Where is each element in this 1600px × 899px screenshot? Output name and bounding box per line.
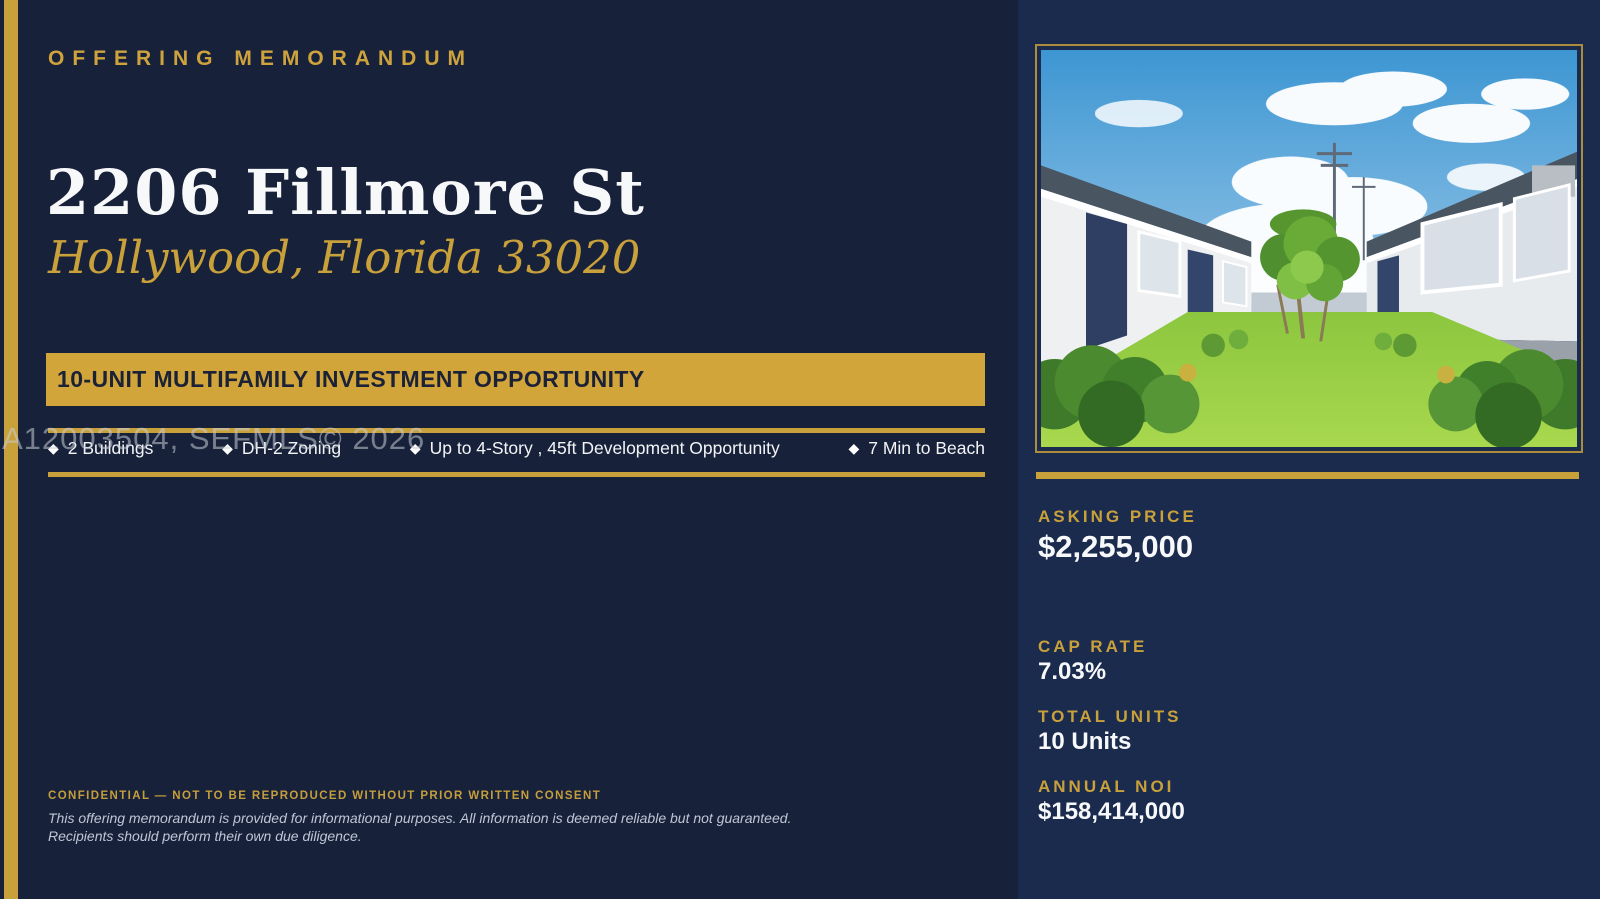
investment-banner: 10-UNIT MULTIFAMILY INVESTMENT OPPORTUNI… bbox=[46, 353, 985, 406]
highlight-item: ◆ 2 Buildings bbox=[48, 438, 153, 459]
highlight-label: 7 Min to Beach bbox=[868, 438, 985, 459]
highlight-label: DH-2 Zoning bbox=[242, 438, 341, 459]
cap-rate-value: 7.03% bbox=[1038, 658, 1106, 686]
highlight-label: Up to 4-Story , 45ft Development Opportu… bbox=[430, 438, 780, 459]
total-units-value: 10 Units bbox=[1038, 728, 1131, 756]
property-photo-frame bbox=[1035, 44, 1583, 453]
disclaimer-text: This offering memorandum is provided for… bbox=[48, 809, 791, 845]
offering-memorandum-page: OFFERING MEMORANDUM 2206 Fillmore St Hol… bbox=[0, 0, 1600, 899]
confidential-notice: CONFIDENTIAL — NOT TO BE REPRODUCED WITH… bbox=[48, 790, 601, 802]
highlights-row: ◆ 2 Buildings ◆ DH-2 Zoning ◆ Up to 4-St… bbox=[48, 434, 985, 462]
cap-rate-label: CAP RATE bbox=[1038, 637, 1147, 657]
annual-noi-label: ANNUAL NOI bbox=[1038, 777, 1174, 797]
total-units-label: TOTAL UNITS bbox=[1038, 707, 1182, 727]
diamond-icon: ◆ bbox=[410, 441, 421, 455]
highlight-item: ◆ Up to 4-Story , 45ft Development Oppor… bbox=[410, 438, 780, 459]
diamond-icon: ◆ bbox=[222, 441, 233, 455]
investment-banner-label: 10-UNIT MULTIFAMILY INVESTMENT OPPORTUNI… bbox=[57, 366, 645, 393]
diamond-icon: ◆ bbox=[48, 441, 59, 455]
diamond-icon: ◆ bbox=[848, 441, 859, 455]
left-gold-strip bbox=[4, 0, 18, 899]
highlight-label: 2 Buildings bbox=[68, 438, 154, 459]
gold-rule-top bbox=[48, 428, 985, 433]
highlight-item: ◆ DH-2 Zoning bbox=[222, 438, 341, 459]
gold-rule-bottom bbox=[48, 472, 985, 477]
disclaimer-line-2: Recipients should perform their own due … bbox=[48, 827, 791, 845]
disclaimer-line-1: This offering memorandum is provided for… bbox=[48, 809, 791, 827]
document-type-label: OFFERING MEMORANDUM bbox=[48, 47, 473, 71]
property-location: Hollywood, Florida 33020 bbox=[48, 231, 640, 284]
property-title: 2206 Fillmore St bbox=[46, 156, 645, 229]
highlight-item: ◆ 7 Min to Beach bbox=[848, 438, 985, 459]
asking-price-value: $2,255,000 bbox=[1038, 529, 1193, 565]
annual-noi-value: $158,414,000 bbox=[1038, 798, 1185, 826]
sidebar-gold-divider bbox=[1036, 472, 1579, 479]
asking-price-label: ASKING PRICE bbox=[1038, 507, 1197, 527]
property-exterior-photo bbox=[1041, 50, 1577, 447]
